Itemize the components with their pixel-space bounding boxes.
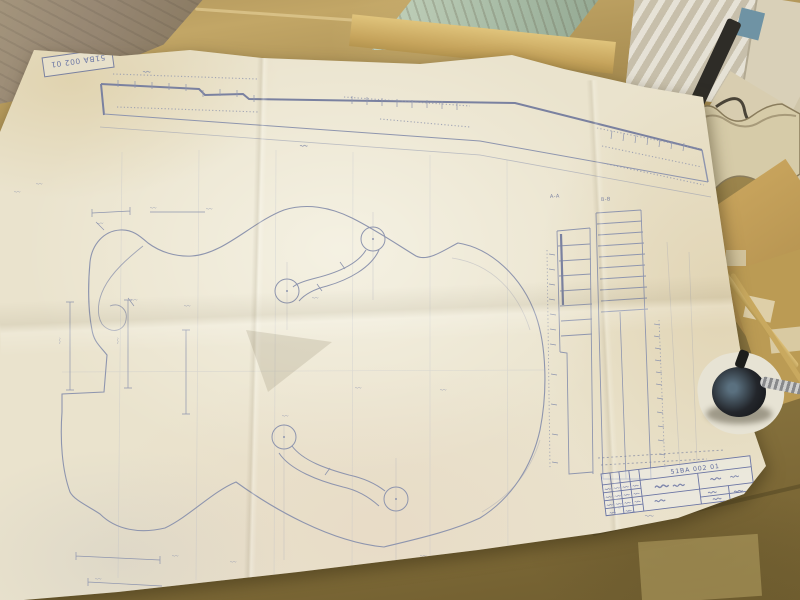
title-block: 51BA 002 01	[601, 456, 755, 516]
photo-scene: A-A B-B	[0, 0, 800, 600]
f-hole-lower	[272, 424, 408, 574]
clamp-knob	[712, 367, 766, 417]
blueprint-sheet: A-A B-B	[0, 0, 800, 600]
blueprint-sheet-wrap: A-A B-B	[0, 0, 800, 600]
guitar-body-outline	[61, 207, 545, 547]
section-a-label: A-A	[550, 193, 560, 200]
construction-grid	[62, 150, 545, 584]
drawing-number-stamp: 51BA 002 01	[42, 48, 114, 77]
side-profile-view	[100, 71, 711, 197]
